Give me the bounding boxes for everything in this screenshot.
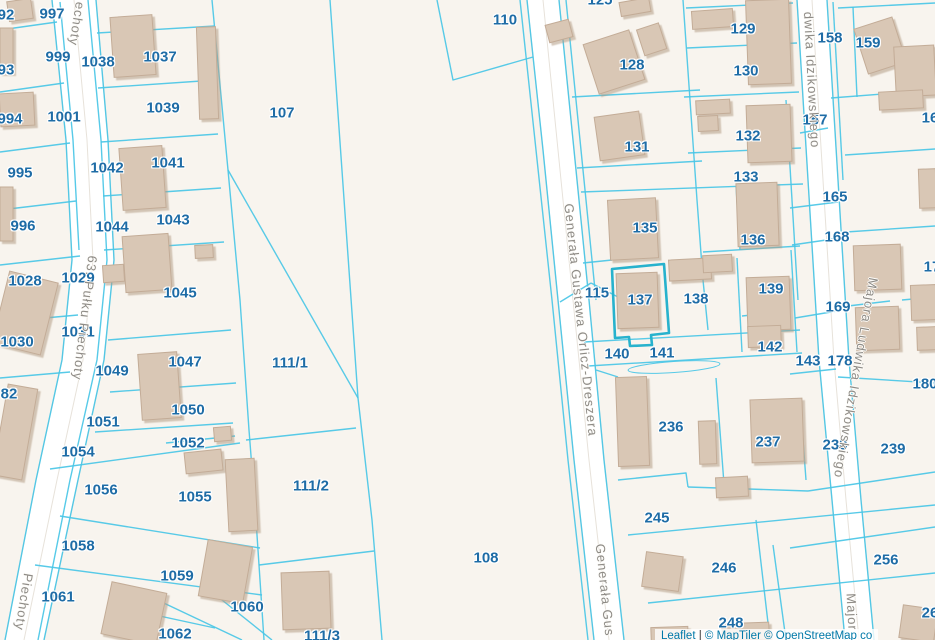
road-edges-layer (5, 0, 874, 640)
building (853, 244, 902, 291)
building (736, 182, 779, 246)
building (102, 264, 124, 282)
roads-layer (5, 0, 874, 640)
building (119, 146, 166, 211)
building (616, 272, 659, 328)
building (122, 233, 172, 292)
building (615, 376, 649, 466)
building (894, 45, 935, 97)
attribution-separator: | (696, 630, 705, 640)
building (918, 169, 935, 209)
map-attribution: Leaflet | © MapTiler © OpenStreetMap co (655, 629, 878, 640)
building (7, 0, 34, 22)
building (281, 571, 331, 630)
building (879, 90, 924, 110)
building (0, 28, 13, 73)
building (198, 540, 252, 604)
building (691, 9, 733, 30)
map-vector-layer (0, 0, 935, 640)
building (642, 552, 684, 592)
building (746, 276, 791, 330)
building (0, 271, 58, 355)
building (910, 285, 935, 321)
building (715, 476, 748, 498)
building (138, 352, 182, 421)
building (583, 30, 645, 94)
map-canvas[interactable]: 9299799910381037931001994103999510421041… (0, 0, 935, 640)
building (607, 198, 658, 260)
tiles-attribution-link[interactable]: © MapTiler © OpenStreetMap co (705, 630, 872, 640)
building (0, 187, 13, 241)
building (637, 23, 667, 56)
building (698, 421, 716, 465)
building (748, 325, 782, 347)
building (746, 0, 792, 85)
building (184, 449, 223, 474)
building (619, 0, 651, 16)
building (0, 384, 38, 480)
building (750, 398, 804, 463)
building (110, 15, 156, 78)
building (698, 115, 719, 131)
building (213, 426, 231, 441)
leaflet-link[interactable]: Leaflet (661, 630, 696, 640)
building (195, 245, 214, 259)
building (917, 327, 935, 351)
building (225, 458, 258, 531)
building (196, 27, 218, 120)
building (594, 111, 645, 161)
building (746, 104, 792, 163)
building (703, 254, 733, 272)
building (0, 92, 35, 127)
building (855, 306, 899, 350)
parcel-lines-layer (0, 0, 935, 640)
building (696, 99, 731, 115)
building (101, 582, 167, 640)
building (899, 605, 935, 640)
